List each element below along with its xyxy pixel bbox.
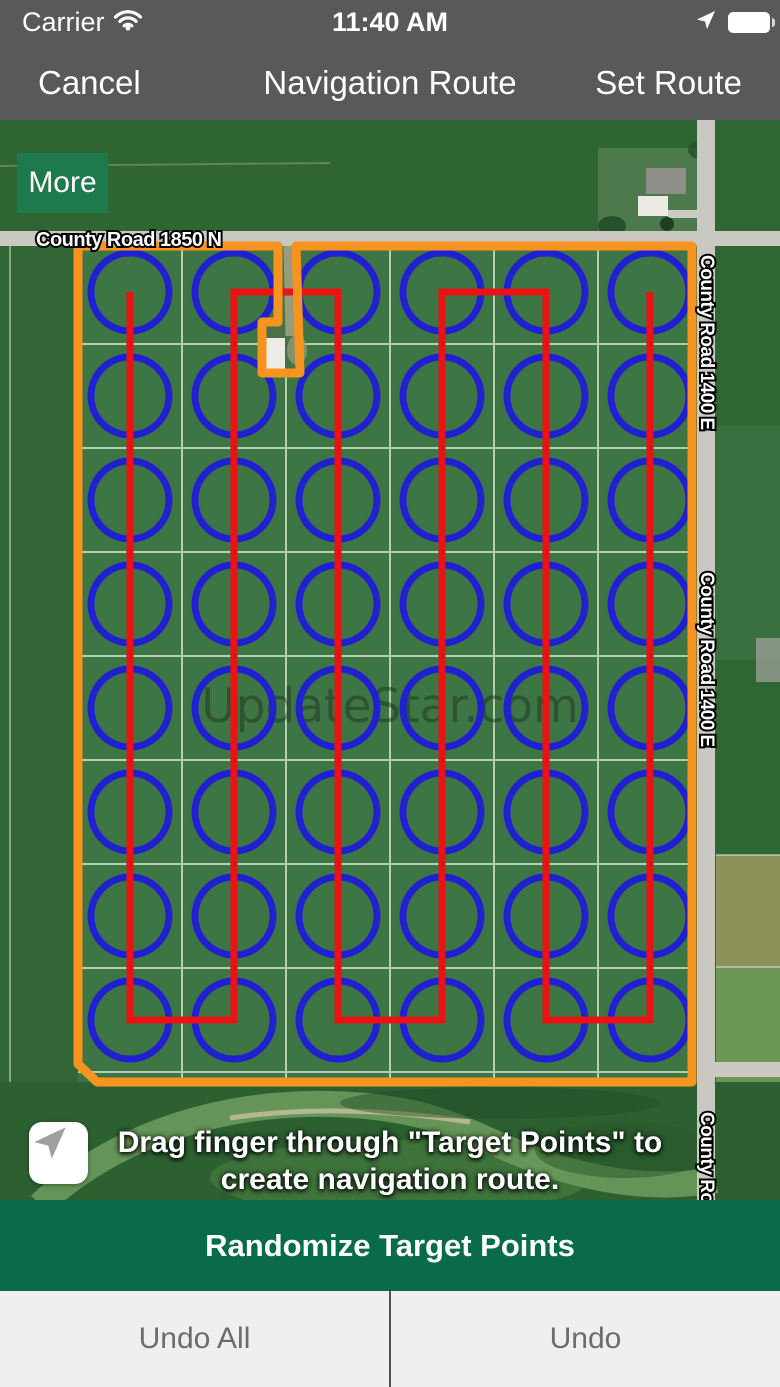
road-label-top: County Road 1850 N: [36, 229, 222, 251]
undo-toolbar: Undo All Undo: [0, 1291, 780, 1387]
farm-house: [638, 196, 668, 216]
watermark-text: UpdateStar.com: [201, 679, 579, 734]
instruction-line-1: Drag finger through "Target Points" to: [0, 1124, 780, 1161]
map-view[interactable]: UpdateStar.com County Road 1850 N County…: [0, 120, 780, 1200]
white-building: [265, 338, 285, 372]
barn-building: [646, 168, 686, 194]
undo-button[interactable]: Undo: [391, 1291, 780, 1387]
battery-icon: [728, 12, 770, 33]
set-route-button[interactable]: Set Route: [595, 64, 742, 102]
field-area: [78, 246, 692, 1082]
randomize-target-points-button[interactable]: Randomize Target Points: [0, 1200, 780, 1291]
more-button[interactable]: More: [17, 153, 108, 213]
status-bar: Carrier 11:40 AM: [0, 0, 780, 45]
navigation-bar: Navigation Route Cancel Set Route: [0, 45, 780, 120]
instruction-text: Drag finger through "Target Points" to c…: [0, 1124, 780, 1198]
road-label-right-2: County Road 1400 E: [696, 572, 717, 747]
road-label-right-1: County Road 1400 E: [696, 255, 717, 430]
instruction-line-2: create navigation route.: [0, 1161, 780, 1198]
cancel-button[interactable]: Cancel: [38, 64, 141, 102]
undo-all-button[interactable]: Undo All: [0, 1291, 389, 1387]
clock: 11:40 AM: [0, 7, 780, 38]
